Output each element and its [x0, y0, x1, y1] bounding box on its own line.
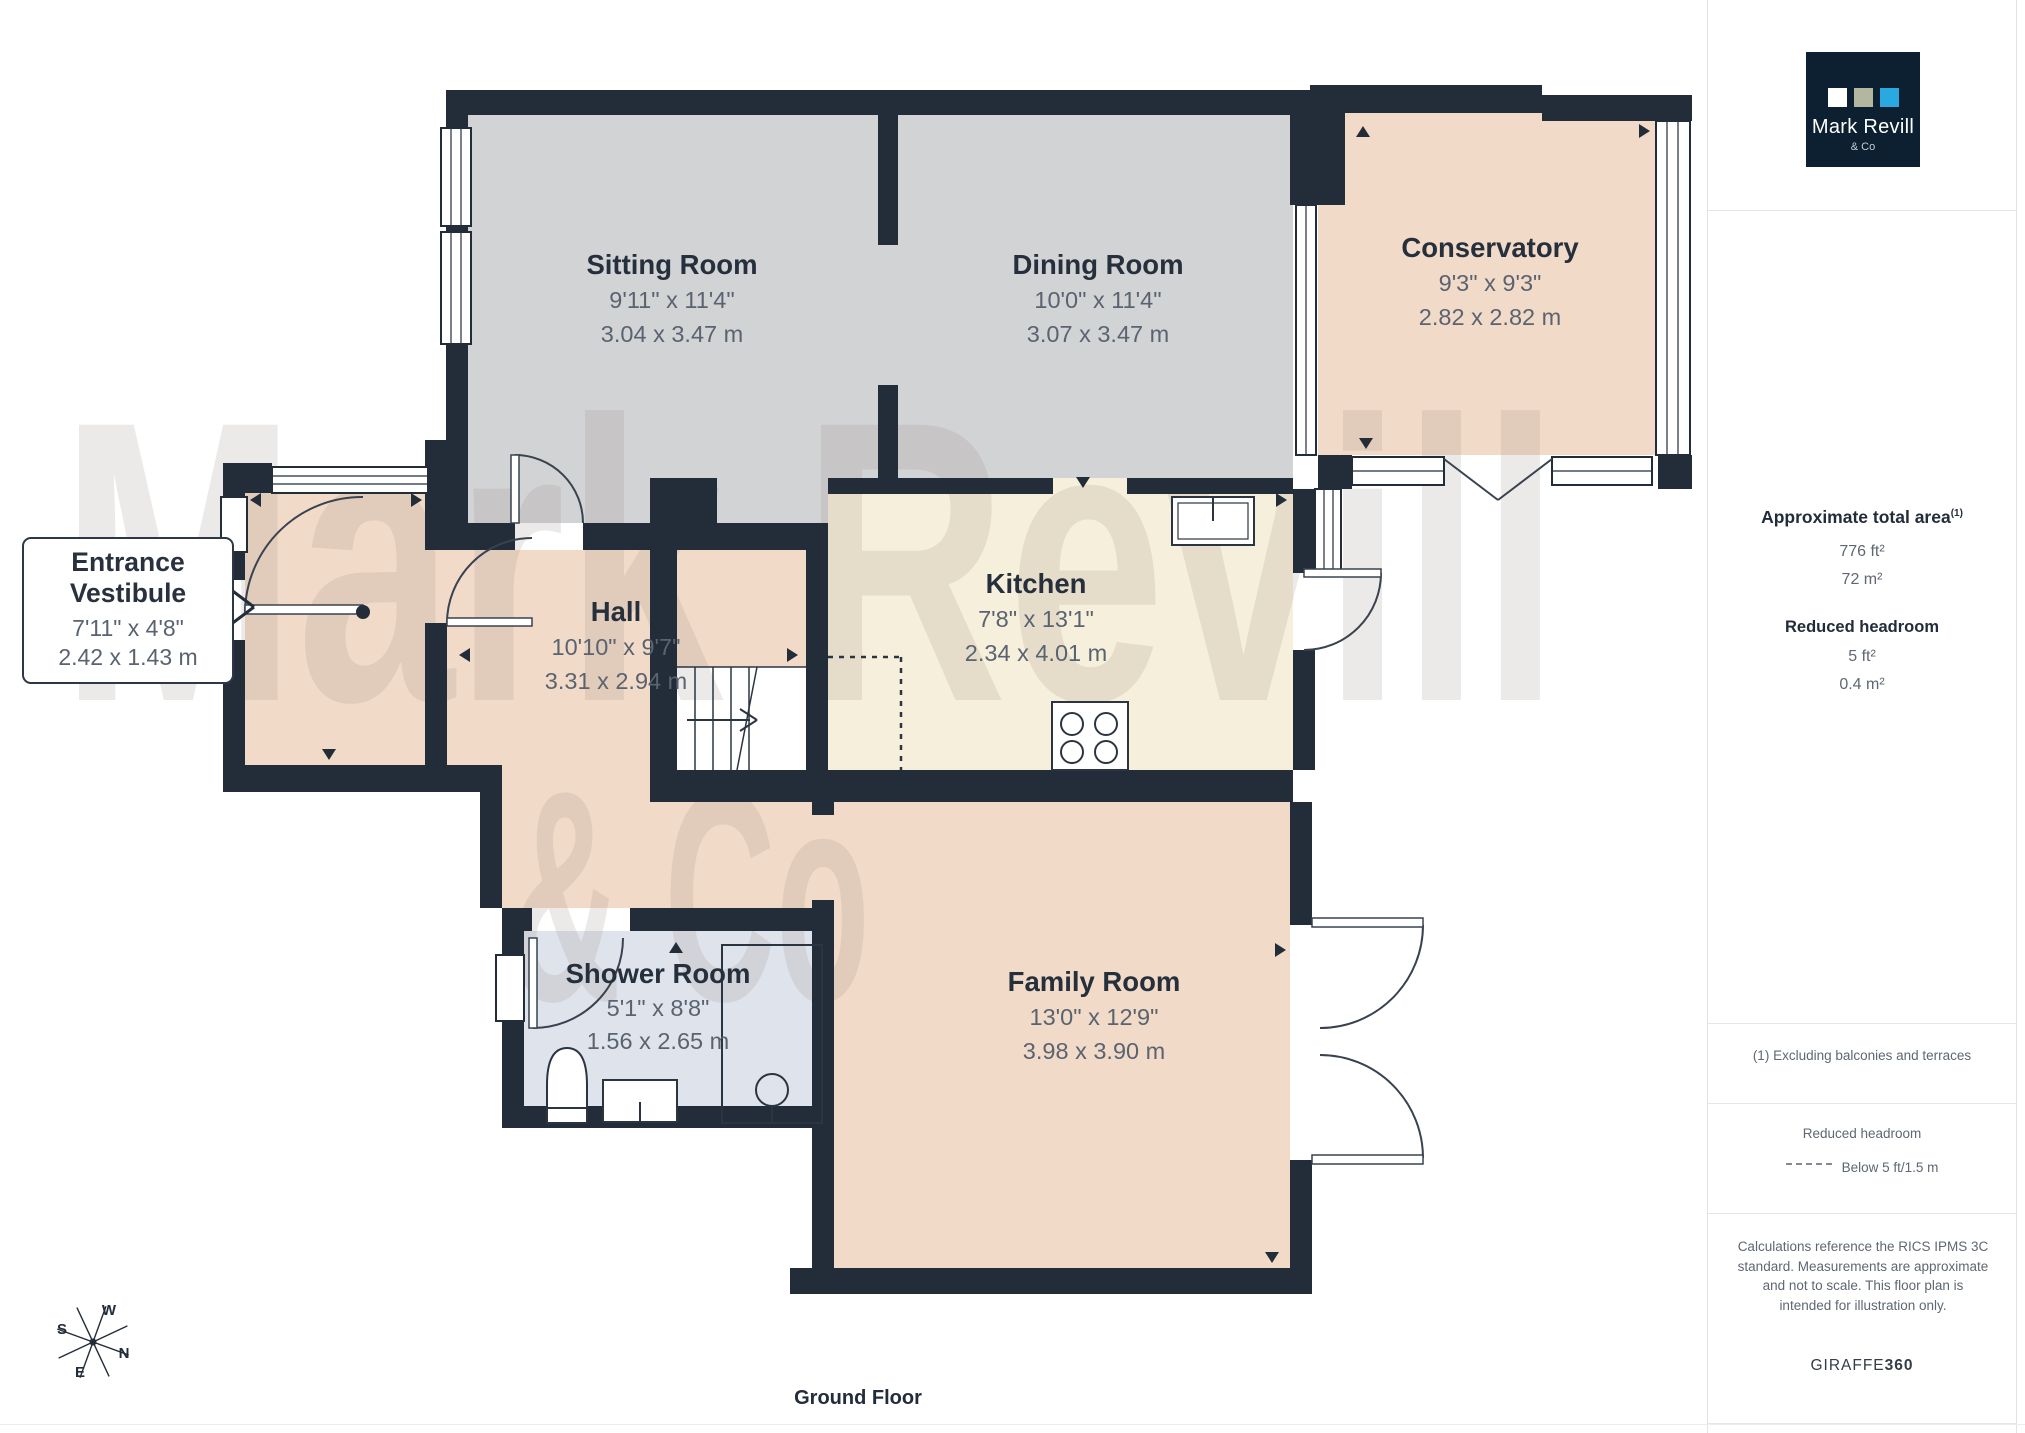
door-leaf-sitting-hall — [511, 455, 519, 523]
conservatory-imperial: 9'3" x 9'3" — [1439, 270, 1542, 296]
sidebar-divider — [1708, 1213, 2016, 1214]
giraffe360-logo: GIRAFFE360 — [1708, 1357, 2016, 1375]
dining-room-imperial: 10'0" x 11'4" — [1034, 287, 1161, 313]
family-room-metric: 3.98 x 3.90 m — [1023, 1038, 1165, 1064]
kitchen-imperial: 7'8" x 13'1" — [978, 606, 1094, 632]
sitting-room-label: Sitting Room — [586, 249, 757, 280]
area-title: Approximate total area(1) — [1708, 507, 2016, 528]
logo-squares-icon — [1828, 88, 1899, 107]
floor-title: Ground Floor — [794, 1387, 922, 1409]
compass-s: S — [57, 1321, 67, 1338]
hall-imperial: 10'10" x 9'7" — [552, 634, 681, 660]
dining-room-label: Dining Room — [1012, 249, 1183, 280]
logo-square-sage-icon — [1854, 88, 1873, 107]
french-door-arc-bottom — [1320, 1055, 1423, 1158]
family-room-label: Family Room — [1008, 966, 1181, 997]
vestibule-imperial: 7'11" x 4'8" — [28, 614, 228, 643]
compass-rose-icon: W S N E — [57, 1302, 129, 1381]
window-passage — [1315, 489, 1341, 573]
kitchen-label: Kitchen — [986, 568, 1087, 599]
hall-label: Hall — [591, 596, 641, 627]
legend-row: Below 5 ft/1.5 m — [1708, 1160, 2016, 1175]
vestibule-metric: 2.42 x 1.43 m — [28, 643, 228, 672]
sidebar-divider — [1708, 210, 2016, 211]
brand-logo: Mark Revill & Co — [1806, 52, 1920, 167]
logo-square-white-icon — [1828, 88, 1847, 107]
family-room-floor — [834, 802, 1290, 1268]
sitting-room-imperial: 9'11" x 11'4" — [609, 287, 734, 313]
page-bottom-divider — [0, 1424, 2025, 1425]
legend-title: Reduced headroom — [1708, 1126, 2016, 1141]
french-door-frame-top — [1312, 918, 1423, 927]
shower-room-imperial: 5'1" x 8'8" — [607, 995, 710, 1021]
reduced-headroom-title: Reduced headroom — [1708, 618, 2016, 637]
area-title-text: Approximate total area — [1761, 507, 1951, 527]
reduced-headroom-ft: 5 ft² — [1708, 648, 2016, 666]
window-sitting-lower — [441, 232, 471, 344]
conservatory-metric: 2.82 x 2.82 m — [1419, 304, 1561, 330]
area-footnote: (1) Excluding balconies and terraces — [1708, 1048, 2016, 1063]
hall-metric: 3.31 x 2.94 m — [545, 668, 687, 694]
window-shower — [496, 955, 524, 1021]
vestibule-name-line2: Vestibule — [28, 578, 228, 609]
logo-square-blue-icon — [1880, 88, 1899, 107]
french-door-frame-bottom — [1312, 1155, 1423, 1164]
dining-room-metric: 3.07 x 3.47 m — [1027, 321, 1169, 347]
shower-room-metric: 1.56 x 2.65 m — [587, 1028, 729, 1054]
dashed-line-sample-icon — [1786, 1163, 1832, 1165]
logo-brand-sub: & Co — [1851, 141, 1875, 153]
compass-n: N — [119, 1345, 130, 1362]
conservatory-label: Conservatory — [1401, 232, 1579, 263]
giraffe360-regular: GIRAFFE — [1810, 1357, 1884, 1374]
entrance-vestibule-label-box: Entrance Vestibule 7'11" x 4'8" 2.42 x 1… — [22, 537, 234, 684]
sidebar-divider — [1708, 1103, 2016, 1104]
french-door-arc-top — [1320, 925, 1423, 1028]
window-porch — [272, 467, 428, 493]
kitchen-metric: 2.34 x 4.01 m — [965, 640, 1107, 666]
area-value-ft: 776 ft² — [1708, 543, 2016, 561]
vestibule-name-line1: Entrance — [28, 547, 228, 578]
family-room-imperial: 13'0" x 12'9" — [1030, 1004, 1159, 1030]
door-leaf-vestibule-hall — [447, 618, 532, 626]
area-value-m: 72 m² — [1708, 571, 2016, 589]
floorplan-page: Mark Revill & Co — [0, 0, 2025, 1433]
door-hinge-dot — [356, 605, 370, 619]
door-leaf-front-entrance — [245, 605, 363, 614]
window-sitting-upper — [441, 128, 471, 226]
compass-e: E — [75, 1364, 85, 1381]
exterior-notch — [447, 792, 480, 908]
sidebar-divider — [1708, 1023, 2016, 1024]
legend-item-text: Below 5 ft/1.5 m — [1842, 1160, 1939, 1175]
disclaimer-text: Calculations reference the RICS IPMS 3C … — [1735, 1237, 1991, 1315]
info-sidebar: Mark Revill & Co Approximate total area(… — [1707, 0, 2017, 1433]
door-leaf-shower — [529, 938, 537, 1028]
sitting-room-metric: 3.04 x 3.47 m — [601, 321, 743, 347]
window-conservatory-side — [1656, 121, 1690, 455]
area-title-footnote-mark: (1) — [1951, 508, 1963, 519]
toilet-icon — [547, 1048, 587, 1123]
giraffe360-bold: 360 — [1885, 1357, 1914, 1374]
shower-room-label: Shower Room — [566, 958, 751, 989]
door-leaf-kitchen-rear — [1304, 569, 1381, 577]
compass-w: W — [102, 1302, 117, 1319]
logo-brand-name: Mark Revill — [1812, 116, 1914, 139]
reduced-headroom-m: 0.4 m² — [1708, 676, 2016, 694]
